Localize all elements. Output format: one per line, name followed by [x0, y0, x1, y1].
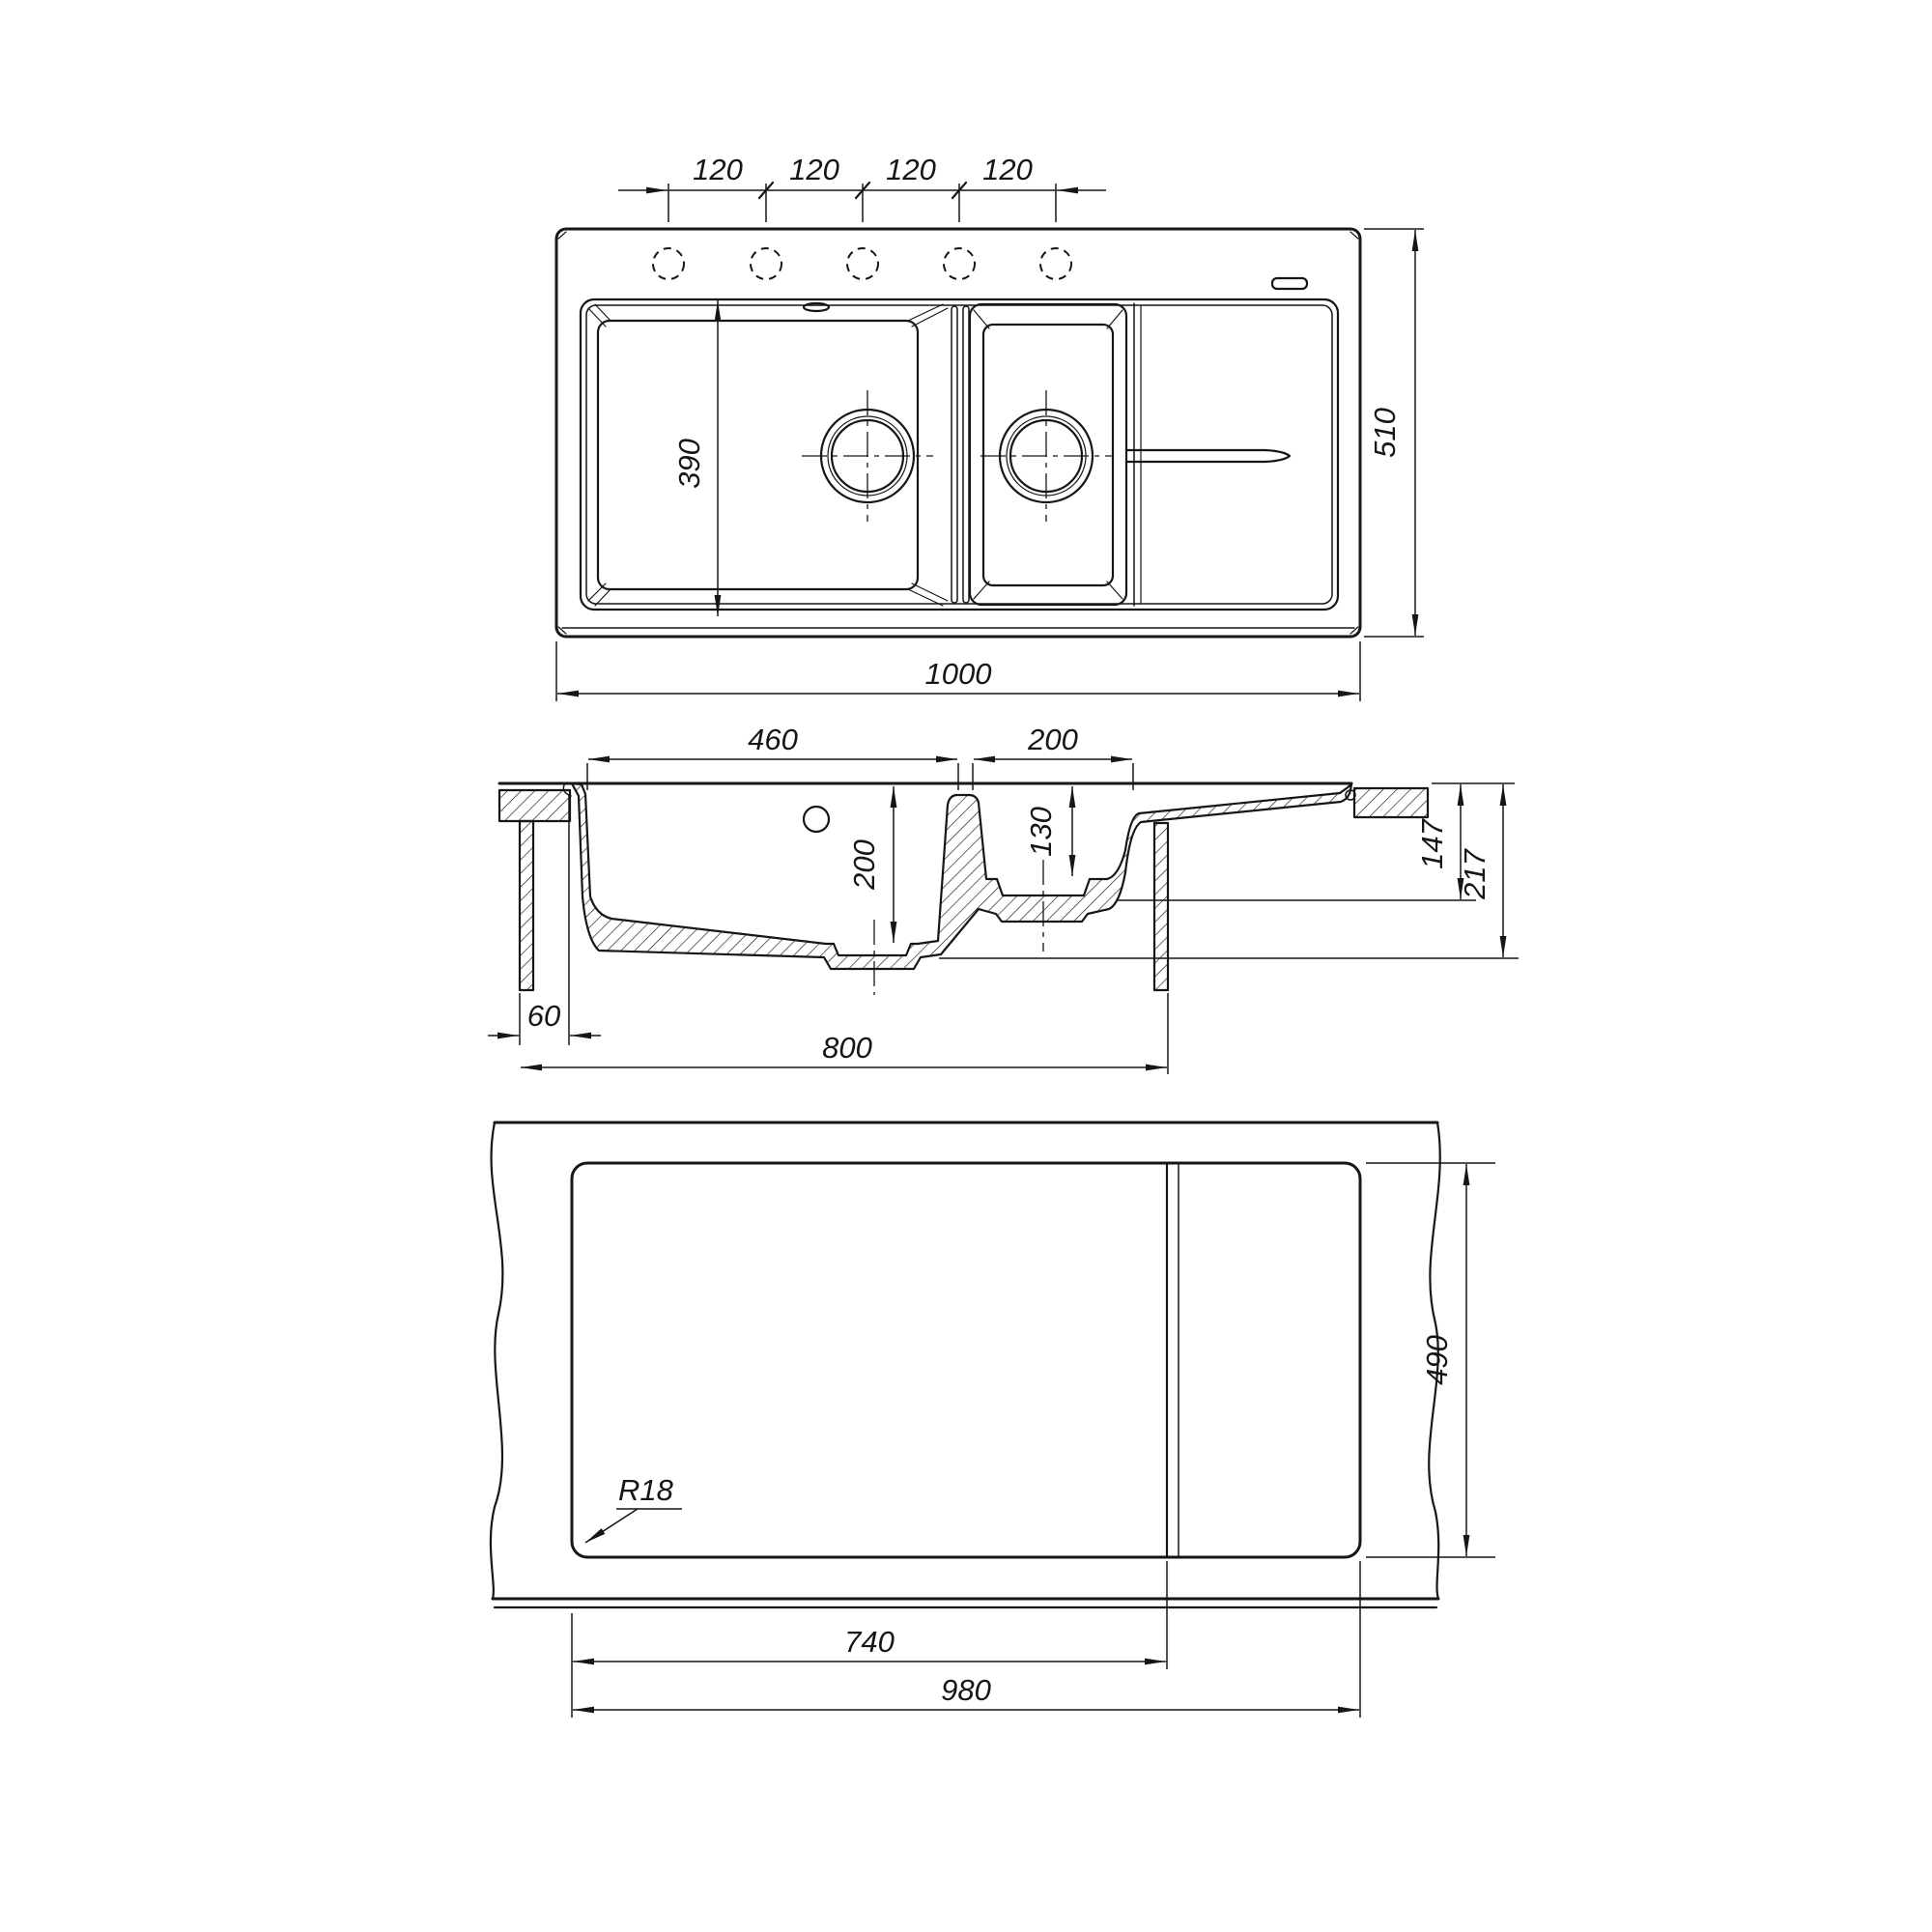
dim-200-depth: 200	[847, 839, 881, 891]
dim-217: 217	[1458, 847, 1492, 899]
dim-120-2: 120	[789, 153, 839, 186]
dim-130: 130	[1024, 807, 1058, 857]
dim-60: 60	[527, 999, 560, 1033]
counter-left-block	[499, 790, 570, 821]
dim-390: 390	[672, 439, 706, 489]
sink-technical-drawing: 120 120 120 120 390 1000 510	[0, 0, 1932, 1932]
dim-490: 490	[1420, 1335, 1454, 1385]
dim-800: 800	[822, 1031, 872, 1065]
dim-147: 147	[1415, 817, 1449, 868]
cabinet-wall-left	[520, 821, 533, 990]
counter-right-block	[1354, 788, 1428, 817]
dim-1000: 1000	[925, 657, 992, 691]
drawing-sheet: 120 120 120 120 390 1000 510	[0, 0, 1932, 1932]
sheet-background	[0, 0, 1932, 1932]
dim-980: 980	[941, 1673, 991, 1707]
dim-120-4: 120	[982, 153, 1033, 186]
dim-740: 740	[844, 1625, 895, 1659]
dim-200-width: 200	[1027, 723, 1078, 756]
dim-r18: R18	[618, 1473, 674, 1507]
dim-120-1: 120	[693, 153, 743, 186]
dim-460: 460	[748, 723, 798, 756]
cabinet-wall-right	[1154, 823, 1168, 990]
dim-510: 510	[1368, 408, 1402, 458]
dim-120-3: 120	[886, 153, 936, 186]
